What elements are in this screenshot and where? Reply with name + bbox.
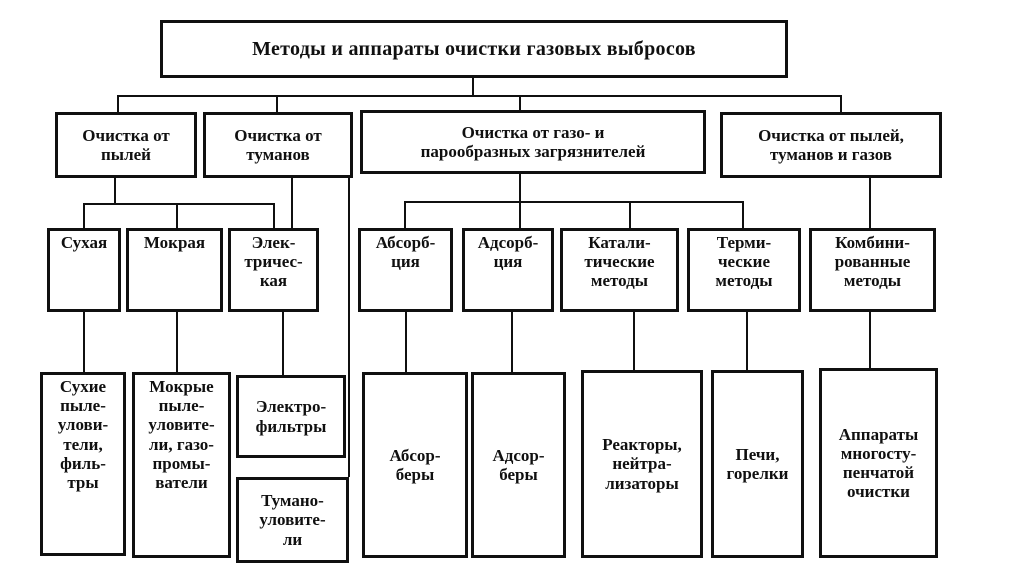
connector-root-feed [472,77,474,97]
connector-drop-dust [117,95,119,113]
connector-fog-to-electric [291,178,293,228]
connector-adsorption-to-adsorbers [511,312,513,372]
node-dry-method: Сухая [47,228,121,312]
connector-drop-wet [176,203,178,228]
node-adsorption: Адсорб- ция [462,228,554,312]
node-wet-dust-collectors: Мокрые пыле- уловите- ли, газо- промы- в… [132,372,231,558]
connector-drop-dry [83,203,85,228]
connector-wet-to-collectors [176,312,178,372]
connector-drop-gas-vapor [519,95,521,111]
node-cleaning-gas-vapor: Очистка от газо- и парообразных загрязни… [360,110,706,174]
node-thermal-methods: Терми- ческие методы [687,228,801,312]
node-root-title: Методы и аппараты очистки газовых выброс… [160,20,788,78]
connector-electric-to-filters [282,312,284,375]
connector-fog-to-mist-collectors [348,178,350,477]
node-mist-collectors: Тумано- уловите- ли [236,477,349,563]
node-reactors-neutralizers: Реакторы, нейтра- лизаторы [581,370,703,558]
node-absorbers: Абсор- беры [362,372,468,558]
node-cleaning-dust: Очистка от пылей [55,112,197,178]
node-dry-dust-collectors: Сухие пыле- улови- тели, филь- тры [40,372,126,556]
connector-drop-absorption [404,201,406,228]
node-furnaces-burners: Печи, горелки [711,370,804,558]
flowchart-gas-cleaning: Методы и аппараты очистки газовых выброс… [0,0,1024,574]
node-adsorbers: Адсор- беры [471,372,566,558]
node-multistage-apparatus: Аппараты многосту- пенчатой очистки [819,368,938,558]
connector-drop-catalytic [629,201,631,228]
node-combined-methods: Комбини- рованные методы [809,228,936,312]
connector-dust-feed [114,178,116,203]
node-absorption: Абсорб- ция [358,228,453,312]
connector-catalytic-to-reactors [633,312,635,370]
connector-drop-fog [276,95,278,113]
connector-drop-dust-fog-gas [840,95,842,113]
connector-drop-electric [273,203,275,228]
node-electric-method: Элек- тричес- кая [228,228,319,312]
connector-combined-to-multistage [869,312,871,368]
connector-drop-thermal [742,201,744,228]
node-cleaning-dust-fog-gas: Очистка от пылей, туманов и газов [720,112,942,178]
connector-absorption-to-absorbers [405,312,407,372]
connector-thermal-to-furnaces [746,312,748,370]
node-catalytic-methods: Катали- тические методы [560,228,679,312]
node-wet-method: Мокрая [126,228,223,312]
node-cleaning-fog: Очистка от туманов [203,112,353,178]
connector-drop-combined [869,178,871,228]
connector-level2-bus [117,95,842,97]
connector-dust-bus [83,203,275,205]
node-electrofilters: Электро- фильтры [236,375,346,458]
connector-gas-bus [404,201,744,203]
connector-dry-to-collectors [83,312,85,372]
